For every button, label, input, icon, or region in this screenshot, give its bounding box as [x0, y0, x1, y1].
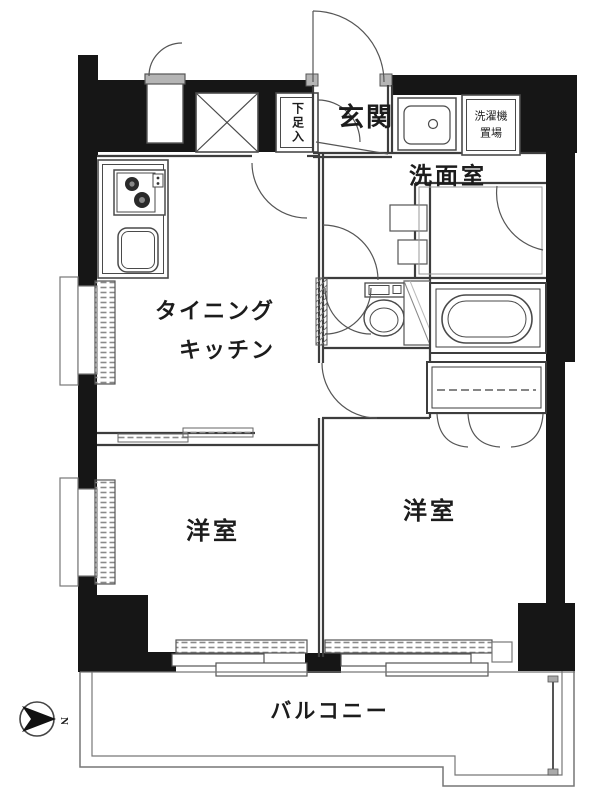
corridor-shelves: [390, 205, 427, 264]
pipe-shaft-wc: [404, 281, 430, 345]
stove-icon: [114, 170, 165, 215]
folding-doors: [437, 414, 543, 447]
left-window-top: [60, 277, 115, 385]
label-kitchen: キッチン: [179, 336, 275, 364]
label-dining: タイニング: [155, 297, 275, 325]
left-window-bottom: [60, 478, 115, 586]
label-bedroom-left: 洋室: [186, 517, 240, 547]
washbasin-icon: [398, 98, 456, 150]
label-shoe-storage: 下足入: [290, 102, 305, 144]
compass-icon: [20, 702, 56, 736]
balcony-outline: [80, 671, 575, 786]
entrance-door-arc: [306, 11, 392, 86]
label-north: N: [56, 717, 70, 725]
service-door: [145, 43, 185, 143]
closet: [427, 362, 546, 413]
balcony-divider: [548, 676, 558, 775]
label-balcony: バルコニー: [270, 698, 390, 724]
balcony-window-right: [325, 640, 512, 676]
sink-icon: [118, 228, 158, 272]
room-divider-bars: [118, 428, 253, 442]
label-washroom: 洗面室: [409, 163, 487, 192]
bathtub-icon: [442, 295, 532, 343]
balcony-window-left: [172, 640, 307, 676]
bathroom: [419, 187, 546, 353]
floor-plan: 玄関 下足入 洗濯機 置場 洗面室 タイニング キッチン 洋室 洋室 バルコニー…: [0, 0, 600, 800]
label-washer-storage: 洗濯機 置場: [475, 109, 508, 142]
toilet-icon: [364, 283, 405, 336]
label-entrance: 玄関: [338, 102, 394, 135]
label-bedroom-right: 洋室: [403, 497, 457, 527]
pipe-shaft-box: [196, 93, 258, 152]
